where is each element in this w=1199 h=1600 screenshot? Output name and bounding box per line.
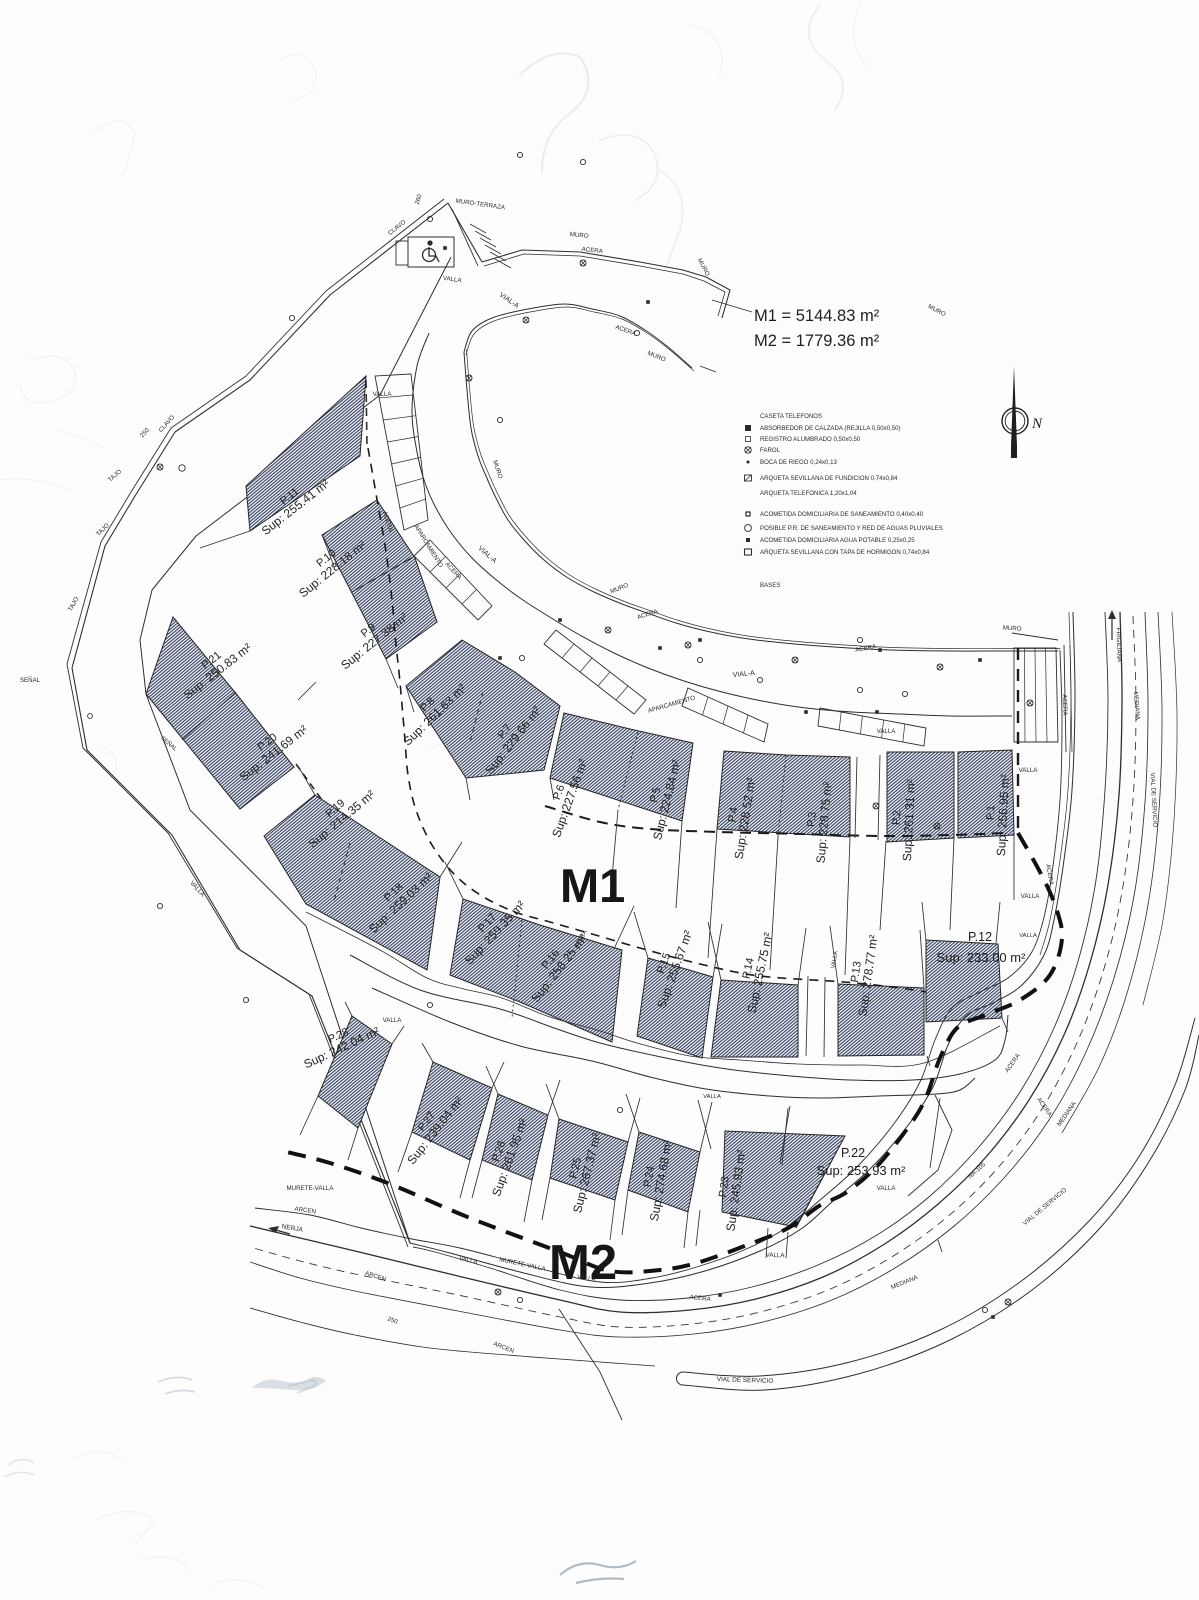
svg-text:ACERA: ACERA	[1061, 694, 1069, 716]
svg-text:VALLA: VALLA	[1021, 893, 1041, 900]
svg-text:REGISTRO ALUMBRADO 0,50x0,50: REGISTRO ALUMBRADO 0,50x0,50	[760, 436, 861, 443]
svg-text:VALLA: VALLA	[1019, 767, 1039, 774]
svg-text:ARQUETA SEVILLANA CON TAPA: ARQUETA SEVILLANA CON TAPA DE HORMIGON 0…	[760, 549, 930, 556]
svg-text:VALLA: VALLA	[373, 391, 393, 398]
svg-text:ACOMETIDA DOMICILIARIA DE S: ACOMETIDA DOMICILIARIA DE SANEAMIENTO 0,…	[760, 511, 924, 518]
svg-text:ABSORBEDOR DE CALZADA (REJI: ABSORBEDOR DE CALZADA (REJILLA 0,50x0,50…	[760, 425, 901, 432]
svg-text:ARQUETA SEVILLANA DE FUNDIC: ARQUETA SEVILLANA DE FUNDICION 0,74x0,84	[760, 475, 898, 482]
svg-text:MURO: MURO	[1002, 624, 1022, 632]
svg-text:BASES: BASES	[760, 582, 780, 589]
svg-text:ACOMETIDA DOMICILIARIA AGUA: ACOMETIDA DOMICILIARIA AGUA POTABLE 0,25…	[760, 537, 915, 544]
svg-text:VALLA: VALLA	[877, 728, 897, 735]
svg-text:VALLA: VALLA	[703, 1094, 721, 1100]
svg-text:N: N	[1031, 416, 1043, 432]
svg-text:VALLA: VALLA	[766, 1252, 786, 1260]
svg-text:ARQUETA TELEFONICA 1,20x1,04: ARQUETA TELEFONICA 1,20x1,04	[760, 490, 857, 497]
svg-text:POSIBLE P.R. DE SANEAMIENTO: POSIBLE P.R. DE SANEAMIENTO Y RED DE AGU…	[760, 525, 943, 532]
svg-text:Sup: 253.93 m²: Sup: 253.93 m²	[817, 1163, 907, 1178]
svg-text:BOCA DE RIEGO 0,24x0,13: BOCA DE RIEGO 0,24x0,13	[760, 459, 837, 466]
svg-text:MURETE-VALLA: MURETE-VALLA	[287, 1185, 335, 1192]
svg-text:FRIGILIANA: FRIGILIANA	[1114, 628, 1122, 663]
svg-text:SEÑAL: SEÑAL	[20, 677, 41, 684]
svg-text:Sup: 233.00 m²: Sup: 233.00 m²	[937, 950, 1027, 965]
svg-text:CASETA TELEFONOS: CASETA TELEFONOS	[760, 413, 822, 420]
svg-text:M1 = 5144.83 m²: M1 = 5144.83 m²	[754, 307, 880, 325]
svg-text:VALLA: VALLA	[383, 1017, 403, 1024]
svg-text:VALLA: VALLA	[1019, 933, 1037, 939]
svg-text:M2: M2	[549, 1236, 617, 1290]
svg-text:VALLA: VALLA	[877, 1185, 897, 1192]
svg-text:P.12: P.12	[968, 930, 992, 944]
svg-text:M2 = 1779.36 m²: M2 = 1779.36 m²	[754, 332, 880, 350]
svg-text:P.22: P.22	[841, 1146, 865, 1160]
svg-text:FAROL: FAROL	[760, 447, 781, 454]
svg-text:M1: M1	[560, 859, 625, 912]
